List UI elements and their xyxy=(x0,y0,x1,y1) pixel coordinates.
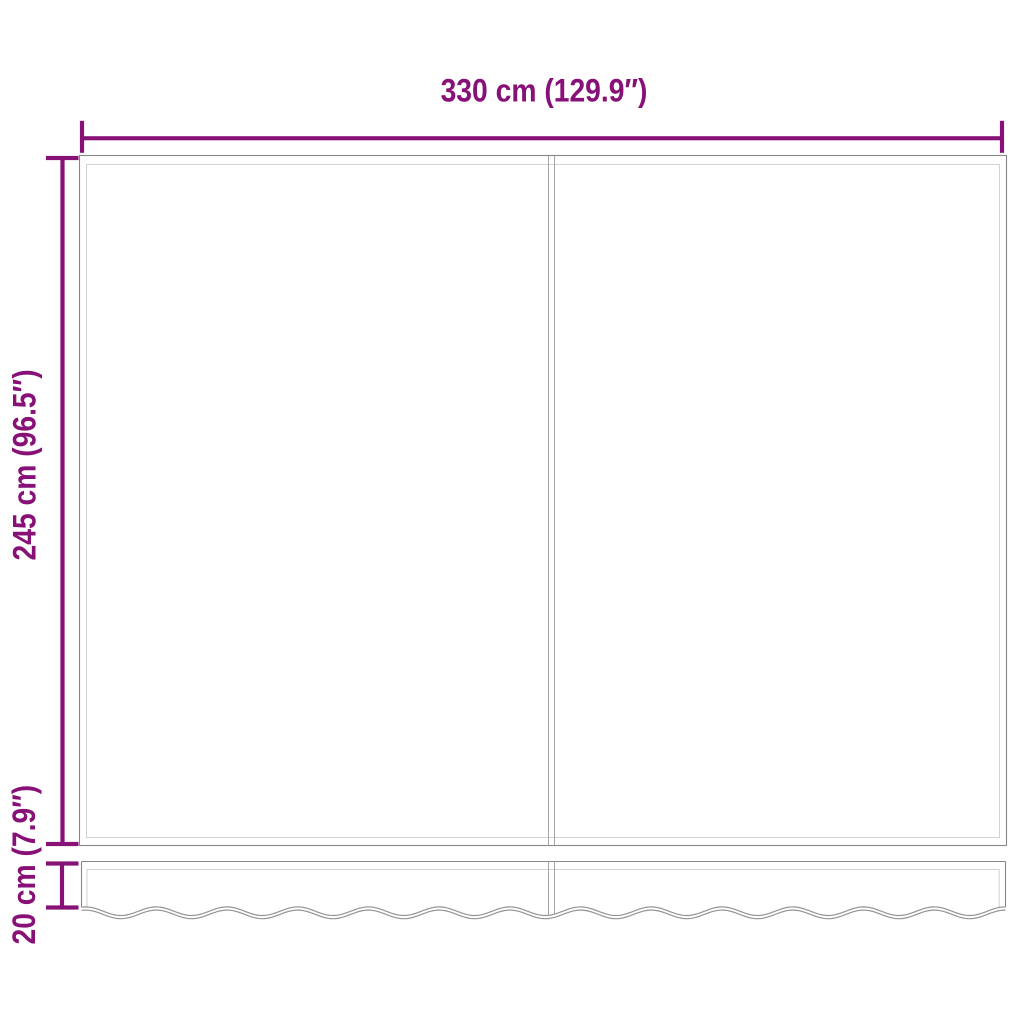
svg-text:245 cm (96.5″): 245 cm (96.5″) xyxy=(7,369,43,560)
svg-text:20 cm (7.9″): 20 cm (7.9″) xyxy=(6,785,42,945)
svg-text:330 cm (129.9″): 330 cm (129.9″) xyxy=(441,73,648,109)
